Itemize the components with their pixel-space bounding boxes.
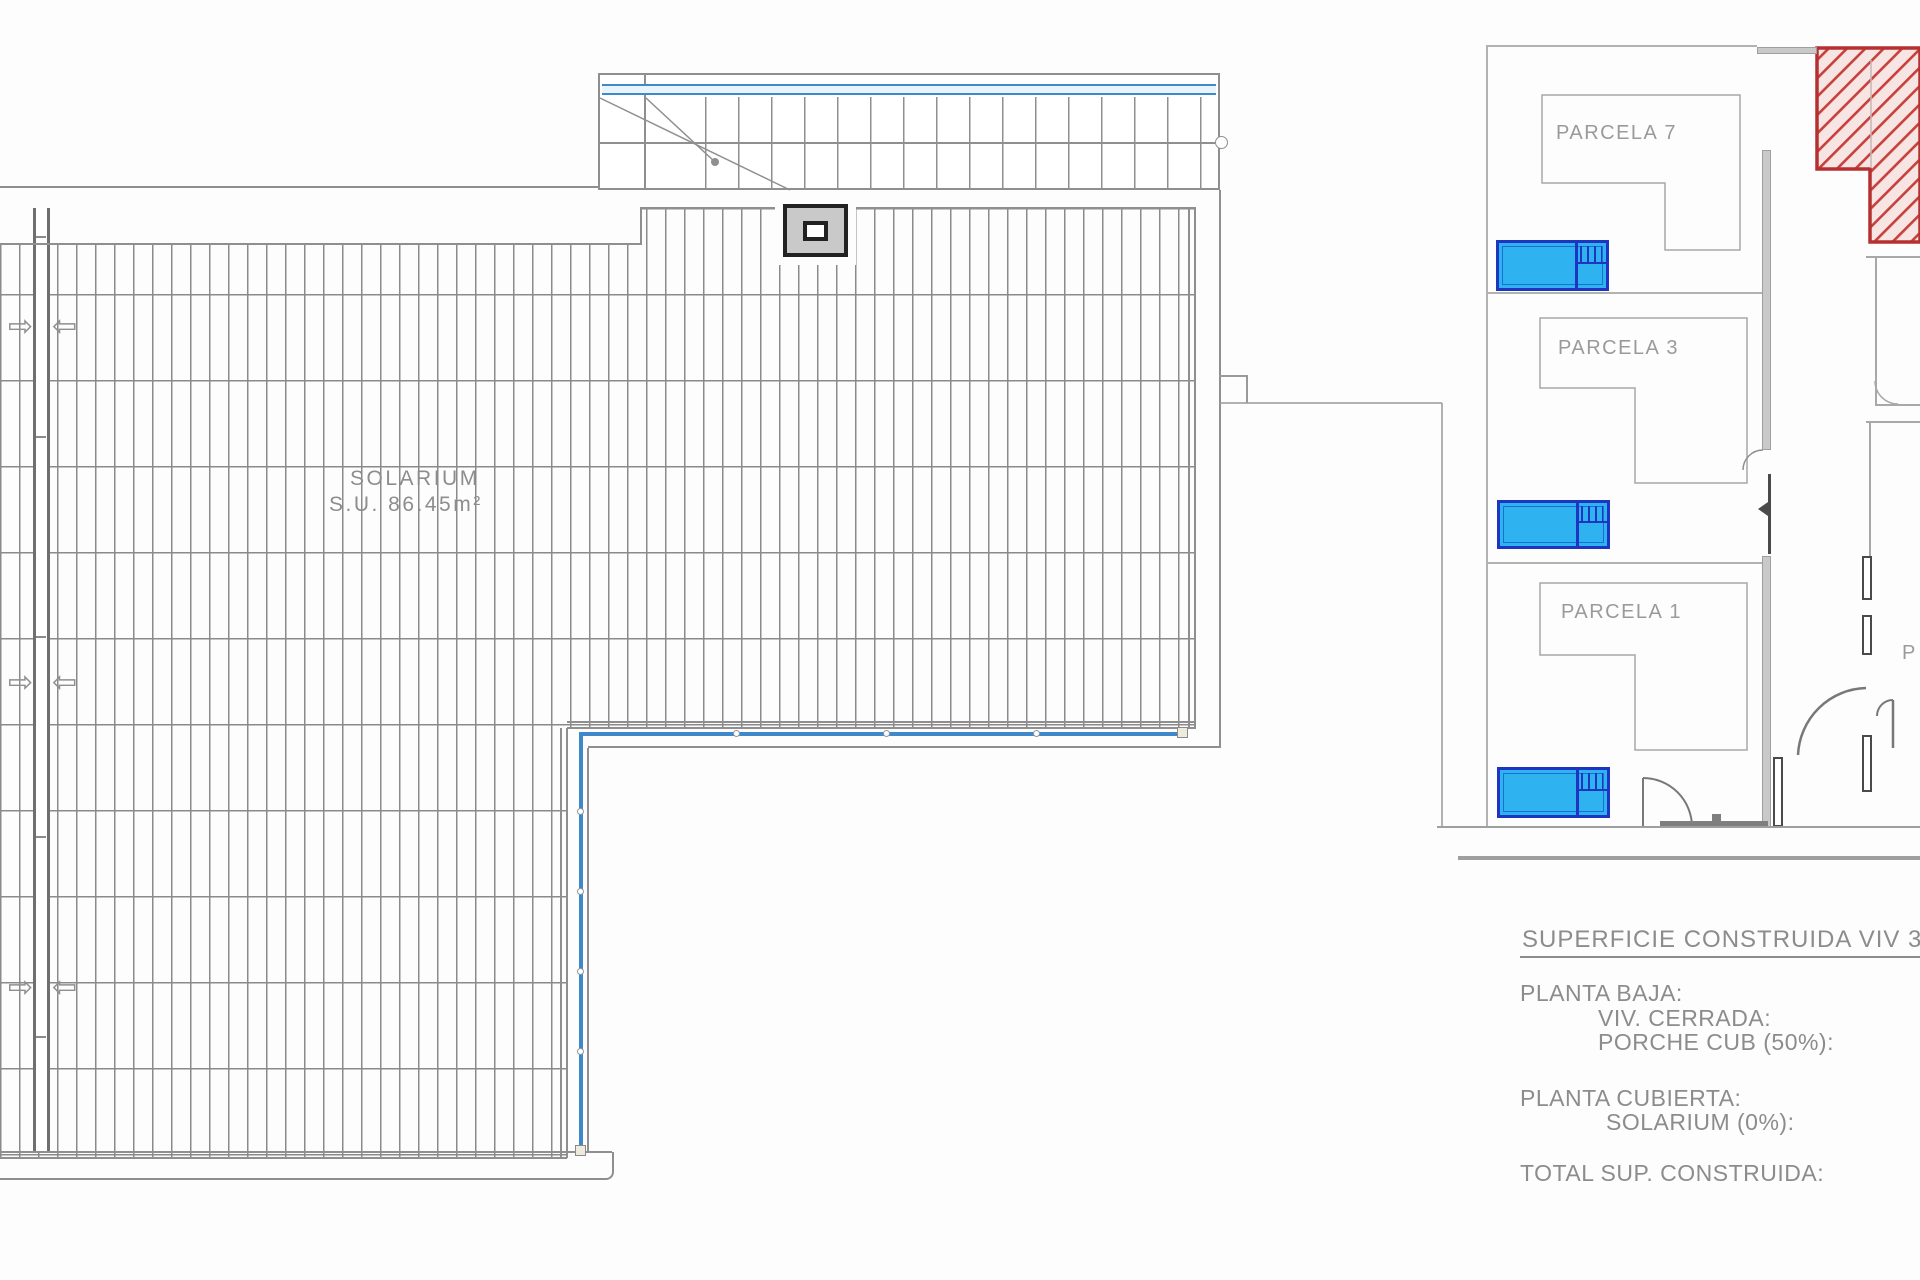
ground-line — [1437, 826, 1920, 828]
room-wall — [1875, 404, 1920, 406]
cutoff-parcel-label: P — [1902, 642, 1917, 665]
corridor-wall — [1757, 47, 1817, 54]
pool-parcela-3 — [1497, 500, 1610, 549]
pool-divider — [1576, 770, 1579, 815]
pool-shelf — [1579, 789, 1607, 791]
room-wall — [1875, 256, 1877, 404]
wall-pillar — [1862, 556, 1872, 600]
pool-steps — [1581, 506, 1602, 521]
corridor-wall — [1762, 556, 1771, 827]
wall-pillar — [1862, 615, 1872, 655]
pool-divider — [1576, 503, 1579, 546]
summary-planta-baja: PLANTA BAJA: — [1520, 980, 1683, 1007]
room-wall — [1866, 421, 1920, 423]
wall-pillar — [1862, 735, 1872, 792]
summary-porche-cub: PORCHE CUB (50%): — [1598, 1029, 1834, 1056]
parcel-separator — [1486, 292, 1762, 294]
architectural-drawing-sheet: ⇨ ⇦ ⇨ ⇦ ⇨ ⇦ SOLARIUM S.U. 86.45m² — [0, 0, 1920, 1280]
stair-break-line — [646, 98, 715, 162]
door-leaf — [1768, 474, 1771, 554]
door-arc — [1877, 700, 1893, 716]
parcela-3-label: PARCELA 3 — [1558, 337, 1679, 360]
door-arc — [1643, 778, 1692, 827]
stair-break-node — [711, 158, 719, 166]
pool-shelf — [1579, 521, 1607, 523]
wall-notch — [1219, 376, 1247, 403]
summary-solarium: SOLARIUM (0%): — [1606, 1109, 1794, 1136]
pool-parcela-7 — [1496, 240, 1609, 291]
summary-heading-underline — [1520, 956, 1920, 958]
pool-steps — [1580, 246, 1601, 262]
parcel-separator — [1486, 562, 1768, 564]
wall-pillar — [1773, 757, 1783, 827]
summary-viv-cerrada: VIV. CERRADA: — [1598, 1005, 1771, 1032]
door-swing-tick — [1758, 502, 1768, 516]
door-arc — [1743, 450, 1763, 470]
corridor-wall — [1762, 150, 1771, 450]
house-outline-parcela-7 — [1542, 95, 1740, 250]
pool-parcela-1 — [1497, 767, 1610, 818]
facade-wall-bump — [1712, 814, 1721, 822]
summary-total: TOTAL SUP. CONSTRUIDA: — [1520, 1160, 1824, 1187]
pool-divider — [1575, 243, 1578, 288]
room-wall — [1869, 421, 1871, 556]
pool-steps — [1581, 773, 1602, 789]
summary-planta-cubierta: PLANTA CUBIERTA: — [1520, 1085, 1741, 1112]
door-arc — [1875, 381, 1898, 404]
door-arc — [1798, 688, 1866, 755]
parcel-boundary-top — [1486, 45, 1757, 47]
summary-heading: SUPERFICIE CONSTRUIDA VIV 3 — [1522, 926, 1920, 954]
highlighted-solarium-vivienda3 — [1817, 48, 1920, 242]
ground-line — [1458, 856, 1920, 860]
parcel-boundary-left — [1486, 45, 1488, 827]
parcela-1-label: PARCELA 1 — [1561, 601, 1682, 624]
pool-shelf — [1578, 262, 1606, 264]
parcela-7-label: PARCELA 7 — [1556, 122, 1677, 145]
